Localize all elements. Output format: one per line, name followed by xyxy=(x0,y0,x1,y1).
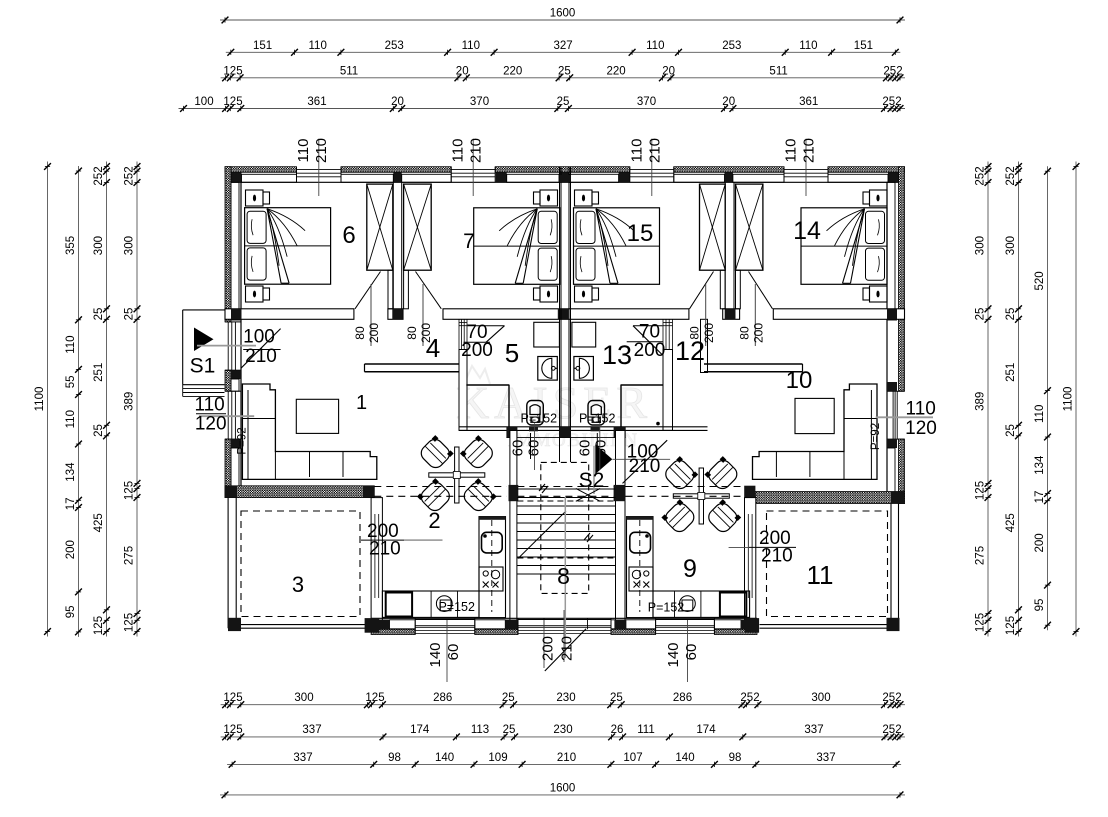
svg-text:26: 26 xyxy=(611,724,624,736)
svg-text:110: 110 xyxy=(194,395,224,416)
svg-text:210: 210 xyxy=(245,346,277,367)
svg-text:25: 25 xyxy=(975,308,987,321)
svg-text:327: 327 xyxy=(554,40,573,52)
svg-text:200: 200 xyxy=(461,340,493,361)
svg-text:17: 17 xyxy=(65,498,77,511)
svg-text:200: 200 xyxy=(1034,533,1046,552)
svg-text:111: 111 xyxy=(637,724,654,736)
svg-text:210: 210 xyxy=(761,546,793,567)
svg-text:95: 95 xyxy=(65,606,77,619)
svg-text:100: 100 xyxy=(243,327,275,348)
svg-text:120: 120 xyxy=(905,418,937,439)
svg-text:125: 125 xyxy=(124,613,136,632)
svg-text:252: 252 xyxy=(882,692,901,704)
svg-text:8: 8 xyxy=(557,563,570,589)
svg-text:220: 220 xyxy=(503,65,522,77)
svg-text:140: 140 xyxy=(435,752,454,764)
svg-text:125: 125 xyxy=(223,724,242,736)
svg-text:P=152: P=152 xyxy=(648,601,685,615)
svg-text:286: 286 xyxy=(433,692,452,704)
svg-text:25: 25 xyxy=(1005,424,1017,437)
svg-text:13: 13 xyxy=(602,340,632,370)
svg-text:300: 300 xyxy=(93,236,105,255)
svg-text:110: 110 xyxy=(646,40,664,52)
svg-text:109: 109 xyxy=(488,752,507,764)
svg-text:200: 200 xyxy=(65,540,77,559)
svg-text:1: 1 xyxy=(356,392,367,414)
svg-text:252: 252 xyxy=(93,166,105,185)
svg-text:12: 12 xyxy=(675,336,705,366)
svg-text:7: 7 xyxy=(463,230,475,253)
svg-text:134: 134 xyxy=(65,462,77,482)
svg-text:200: 200 xyxy=(539,636,556,661)
svg-text:370: 370 xyxy=(470,96,489,108)
svg-text:98: 98 xyxy=(388,752,401,764)
svg-text:140: 140 xyxy=(675,752,694,764)
svg-text:25: 25 xyxy=(558,65,571,77)
svg-text:25: 25 xyxy=(610,692,623,704)
svg-text:25: 25 xyxy=(557,96,570,108)
svg-text:337: 337 xyxy=(816,752,835,764)
svg-text:200: 200 xyxy=(752,323,766,343)
svg-text:S1: S1 xyxy=(190,355,216,378)
svg-text:300: 300 xyxy=(975,236,987,255)
svg-text:20: 20 xyxy=(391,96,404,108)
svg-text:125: 125 xyxy=(124,481,136,500)
svg-text:425: 425 xyxy=(93,513,105,532)
svg-text:251: 251 xyxy=(1005,363,1017,382)
svg-text:337: 337 xyxy=(804,724,823,736)
svg-text:210: 210 xyxy=(557,752,576,764)
svg-text:15: 15 xyxy=(627,220,654,247)
svg-text:110: 110 xyxy=(783,139,800,163)
svg-text:95: 95 xyxy=(1034,599,1046,612)
svg-text:110: 110 xyxy=(295,139,312,163)
svg-text:60: 60 xyxy=(526,440,543,457)
svg-text:300: 300 xyxy=(811,692,830,704)
svg-text:113: 113 xyxy=(471,724,489,736)
svg-text:110: 110 xyxy=(65,410,77,428)
svg-text:425: 425 xyxy=(1005,513,1017,532)
svg-text:S2: S2 xyxy=(579,469,605,492)
svg-text:5: 5 xyxy=(505,338,519,368)
svg-text:60: 60 xyxy=(577,440,594,457)
svg-text:80: 80 xyxy=(353,326,367,340)
svg-text:25: 25 xyxy=(1005,308,1017,321)
svg-text:125: 125 xyxy=(365,692,384,704)
svg-text:220: 220 xyxy=(607,65,626,77)
svg-text:252: 252 xyxy=(883,65,902,77)
svg-text:60: 60 xyxy=(445,644,462,661)
svg-text:125: 125 xyxy=(975,481,987,500)
svg-text:110: 110 xyxy=(450,139,467,163)
svg-text:1100: 1100 xyxy=(34,387,46,412)
svg-text:125: 125 xyxy=(223,65,242,77)
svg-text:389: 389 xyxy=(124,392,136,411)
svg-text:252: 252 xyxy=(740,692,759,704)
svg-text:20: 20 xyxy=(662,65,675,77)
svg-text:300: 300 xyxy=(1005,236,1017,255)
svg-text:200: 200 xyxy=(634,340,666,361)
svg-text:361: 361 xyxy=(307,96,326,108)
svg-text:110: 110 xyxy=(628,139,645,163)
svg-text:120: 120 xyxy=(195,414,227,435)
svg-text:151: 151 xyxy=(253,40,272,52)
svg-text:80: 80 xyxy=(737,326,751,340)
svg-text:125: 125 xyxy=(223,692,242,704)
svg-text:125: 125 xyxy=(223,96,242,108)
svg-text:25: 25 xyxy=(93,424,105,437)
svg-text:1100: 1100 xyxy=(1063,387,1075,412)
svg-text:252: 252 xyxy=(124,166,136,185)
svg-text:11: 11 xyxy=(807,560,834,590)
svg-text:252: 252 xyxy=(975,166,987,185)
svg-text:110: 110 xyxy=(799,40,817,52)
svg-text:125: 125 xyxy=(1005,616,1017,635)
svg-text:P=152: P=152 xyxy=(438,600,475,614)
svg-text:P=152: P=152 xyxy=(521,412,558,426)
svg-text:389: 389 xyxy=(975,392,987,411)
svg-text:174: 174 xyxy=(410,724,430,736)
svg-text:361: 361 xyxy=(799,96,818,108)
svg-text:300: 300 xyxy=(124,236,136,255)
svg-text:253: 253 xyxy=(385,40,404,52)
svg-text:230: 230 xyxy=(556,692,575,704)
svg-text:252: 252 xyxy=(882,96,901,108)
svg-text:125: 125 xyxy=(93,616,105,635)
svg-text:100: 100 xyxy=(194,96,213,108)
svg-text:252: 252 xyxy=(882,724,901,736)
svg-text:60: 60 xyxy=(683,644,700,661)
svg-text:1600: 1600 xyxy=(550,8,576,20)
svg-text:110: 110 xyxy=(1034,405,1046,423)
svg-text:210: 210 xyxy=(313,138,330,163)
svg-text:110: 110 xyxy=(309,40,327,52)
svg-text:20: 20 xyxy=(456,65,469,77)
svg-text:P=92: P=92 xyxy=(870,423,882,450)
svg-text:151: 151 xyxy=(854,40,873,52)
svg-text:355: 355 xyxy=(65,236,77,255)
svg-text:140: 140 xyxy=(427,642,444,667)
svg-text:14: 14 xyxy=(793,217,821,245)
svg-text:210: 210 xyxy=(468,138,485,163)
svg-text:60: 60 xyxy=(509,440,526,457)
svg-text:140: 140 xyxy=(665,642,682,667)
svg-text:2: 2 xyxy=(428,508,440,533)
svg-text:3: 3 xyxy=(292,572,304,597)
svg-text:25: 25 xyxy=(502,692,515,704)
svg-text:110: 110 xyxy=(65,335,77,353)
svg-text:511: 511 xyxy=(769,65,787,77)
svg-text:P=92: P=92 xyxy=(237,427,249,454)
svg-text:200: 200 xyxy=(367,323,381,343)
svg-text:337: 337 xyxy=(293,752,312,764)
svg-text:230: 230 xyxy=(553,724,572,736)
svg-text:370: 370 xyxy=(637,96,656,108)
svg-text:25: 25 xyxy=(503,724,516,736)
svg-text:98: 98 xyxy=(729,752,742,764)
svg-text:4: 4 xyxy=(426,333,440,363)
svg-text:134: 134 xyxy=(1034,455,1046,475)
svg-text:107: 107 xyxy=(623,752,642,764)
svg-text:511: 511 xyxy=(340,65,358,77)
svg-text:275: 275 xyxy=(975,546,987,565)
svg-text:210: 210 xyxy=(629,456,661,477)
svg-text:337: 337 xyxy=(302,724,321,736)
svg-text:300: 300 xyxy=(294,692,313,704)
svg-text:520: 520 xyxy=(1034,271,1046,290)
svg-text:210: 210 xyxy=(646,138,663,163)
svg-text:17: 17 xyxy=(1034,491,1046,504)
svg-text:P=152: P=152 xyxy=(579,412,616,426)
svg-text:6: 6 xyxy=(342,222,355,249)
svg-text:110: 110 xyxy=(906,399,936,420)
svg-text:25: 25 xyxy=(124,308,136,321)
svg-text:286: 286 xyxy=(673,692,692,704)
svg-text:80: 80 xyxy=(405,326,419,340)
svg-text:1600: 1600 xyxy=(550,782,576,794)
svg-text:10: 10 xyxy=(786,367,813,394)
svg-text:210: 210 xyxy=(369,539,401,560)
svg-text:55: 55 xyxy=(65,376,77,389)
svg-text:25: 25 xyxy=(93,308,105,321)
svg-text:251: 251 xyxy=(93,363,105,382)
svg-text:253: 253 xyxy=(722,40,741,52)
svg-text:275: 275 xyxy=(124,546,136,565)
svg-text:9: 9 xyxy=(683,555,697,583)
svg-text:252: 252 xyxy=(1005,166,1017,185)
svg-text:210: 210 xyxy=(801,138,818,163)
svg-text:174: 174 xyxy=(696,724,716,736)
svg-text:110: 110 xyxy=(462,40,480,52)
svg-text:125: 125 xyxy=(975,613,987,632)
svg-text:20: 20 xyxy=(722,96,735,108)
svg-text:60: 60 xyxy=(593,440,610,457)
